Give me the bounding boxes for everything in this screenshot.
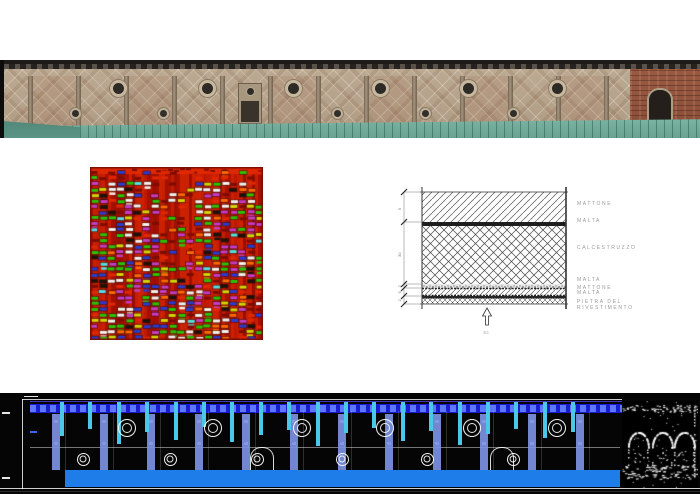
gpr-radargram (90, 167, 263, 340)
arrow-label: E3 (484, 330, 490, 335)
cad-bottom-blue-band (65, 470, 620, 487)
cad-pointcloud-endwall (622, 401, 698, 488)
cad-oculus-outline (204, 419, 222, 437)
layer-label-calcestruzzo: CALCESTRUZZO (577, 245, 636, 251)
cad-porthole-inner (167, 456, 174, 463)
dimension-lines (404, 192, 422, 304)
cad-pilaster-bar (52, 414, 60, 470)
cad-porthole-outline (77, 453, 90, 466)
porthole-window (508, 108, 519, 119)
cad-elevation-mark (2, 477, 10, 479)
cad-oculus-outline (376, 419, 394, 437)
cad-cyan-bar (174, 402, 178, 440)
cad-oculus-outline (548, 419, 566, 437)
stratigraphy-svg: 5 30 2 5 2 E3 (390, 185, 690, 350)
cad-oculus-outline (293, 419, 311, 437)
cad-porthole-inner (424, 456, 431, 463)
cad-arch-outline (490, 447, 514, 472)
cad-porthole-outline (336, 453, 349, 466)
cad-cyan-bar (401, 402, 405, 441)
brick-end-wall (630, 67, 700, 126)
cad-cyan-bar (571, 402, 575, 432)
niche-opening (241, 101, 259, 122)
layer-mattone-hatch (422, 192, 566, 222)
layer-label-malta: MALTA (577, 218, 601, 224)
layer-calcestruzzo-hatch (422, 226, 566, 284)
cad-cyan-bar (486, 402, 490, 434)
cad-cyan-bar (145, 402, 149, 432)
cad-oculus-outline (463, 419, 481, 437)
direction-arrow (483, 308, 492, 325)
cad-oculus-inner (297, 423, 307, 433)
layer-label-malta2: MALTA (577, 277, 601, 283)
layer-label-pietra-2: RIVESTIMENTO (577, 305, 634, 311)
cad-bay-line (351, 411, 352, 473)
figure-canvas: 5 30 2 5 2 E3 MATTONE MALTA CALCESTRUZZO… (0, 0, 700, 494)
dimension-numbers: 5 30 2 5 2 (397, 207, 402, 302)
cad-cyan-bar (88, 402, 92, 429)
cad-cyan-bar (458, 402, 462, 445)
facade-orthophoto (0, 60, 700, 138)
layer-label-mattone: MATTONE (577, 201, 612, 207)
cad-overlay-panel (0, 393, 700, 494)
cad-oculus-inner (208, 423, 218, 433)
cad-oculus-inner (467, 423, 477, 433)
cornice-strip (4, 60, 700, 69)
niche-porthole (246, 87, 255, 96)
porthole-window (332, 108, 343, 119)
layer-label-malta3: MALTA (577, 290, 601, 296)
cad-cyan-bar (344, 402, 348, 433)
svg-text:5: 5 (397, 207, 402, 210)
porthole-window (158, 108, 169, 119)
oculus-window (110, 80, 127, 97)
cad-porthole-outline (164, 453, 177, 466)
cad-oculus-inner (380, 423, 390, 433)
cad-oculus-inner (552, 423, 562, 433)
photo-left-edge (0, 60, 4, 138)
cad-oculus-outline (118, 419, 136, 437)
cad-cyan-bar (60, 402, 64, 436)
cad-porthole-outline (421, 453, 434, 466)
cad-bay-line (446, 411, 447, 473)
cad-cyan-bar (287, 402, 291, 430)
cad-arch-outline (250, 447, 274, 472)
diaper-pattern-wall (4, 68, 632, 130)
cad-bay-line (113, 411, 114, 473)
cad-cyan-bar (514, 402, 518, 429)
cad-baseline2 (0, 491, 700, 492)
cad-bay-line (160, 411, 161, 473)
oculus-window (199, 80, 216, 97)
cad-cyan-bar (543, 402, 547, 438)
cad-pilaster-bar (100, 414, 108, 470)
porthole-window (70, 108, 81, 119)
cad-frame-top (22, 399, 622, 400)
porthole-window (420, 108, 431, 119)
oculus-window (460, 80, 477, 97)
layer-mattone2-hatch (422, 288, 566, 296)
cad-elevation-mark (2, 412, 10, 414)
cad-pilaster-bar (576, 414, 584, 470)
svg-text:30: 30 (397, 252, 402, 257)
cad-elevation-mark-blue (30, 431, 37, 433)
cad-bay-line (398, 411, 399, 473)
wall-stratigraphy-diagram: 5 30 2 5 2 E3 MATTONE MALTA CALCESTRUZZO… (390, 185, 690, 350)
cad-dim-bracket (24, 396, 38, 397)
cad-frame-left (22, 399, 23, 489)
cad-pilaster-bar (433, 414, 441, 470)
cad-cyan-bar (259, 402, 263, 435)
cad-cyan-bar (230, 402, 234, 442)
cad-bay-line (65, 411, 66, 473)
layer-malta3-band (422, 296, 566, 299)
svg-text:2: 2 (397, 285, 402, 288)
cad-bay-line (589, 411, 590, 473)
cad-oculus-inner (122, 423, 132, 433)
cad-cyan-bar (316, 402, 320, 446)
cad-porthole-inner (80, 456, 87, 463)
cad-baseline (0, 488, 700, 489)
layer-pietra-hatch (422, 299, 566, 305)
wall-niche (238, 83, 262, 124)
cad-cyan-bar (429, 402, 433, 431)
oculus-window (285, 80, 302, 97)
cad-pilaster-bar (528, 414, 536, 470)
oculus-window (372, 80, 389, 97)
oculus-window (549, 80, 566, 97)
cad-porthole-inner (339, 456, 346, 463)
